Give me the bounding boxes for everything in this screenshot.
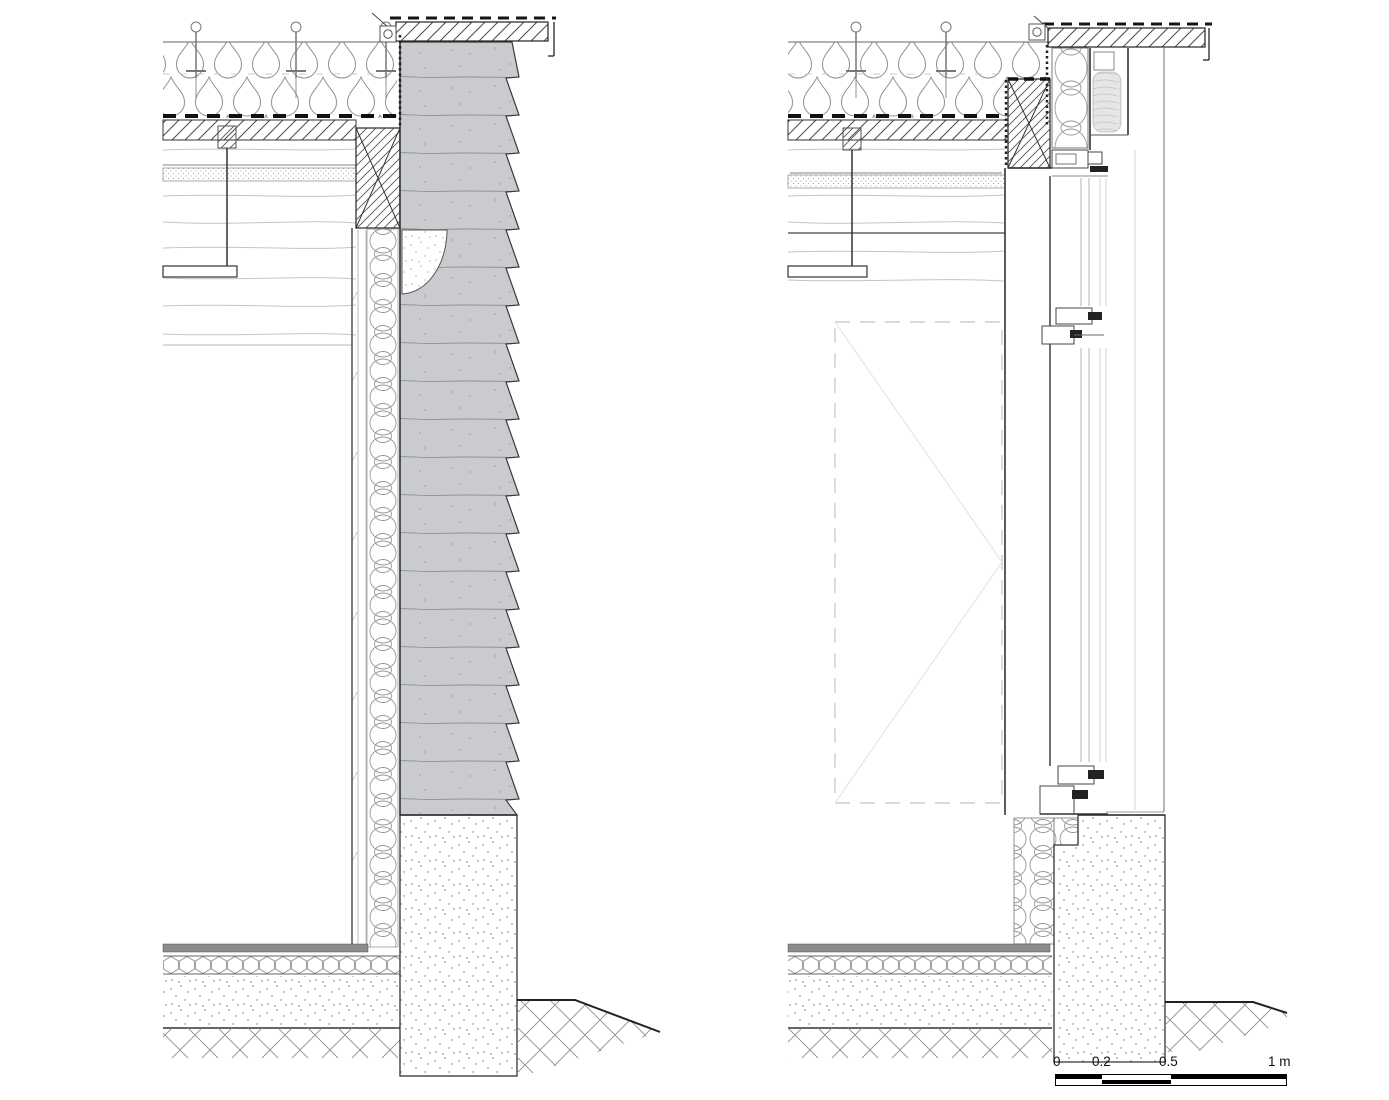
roller-blind-fabric: [1093, 72, 1121, 132]
membrane-upstand: [372, 13, 388, 27]
coping-anchor: [380, 26, 396, 42]
floor-buildup: [788, 944, 1052, 1058]
detail-left: [163, 13, 660, 1078]
roof-deck: [788, 120, 1008, 140]
service-board: [163, 168, 356, 181]
suspended-ceiling-board: [163, 266, 237, 277]
scale-bar: 0 0.2 0.5 1 m: [1048, 1054, 1310, 1094]
scale-label-05: 0.5: [1159, 1054, 1178, 1069]
timber-blocking: [356, 128, 400, 228]
floor-insulation-board: [788, 956, 1052, 974]
hardcore-ground: [163, 1028, 400, 1058]
door-leaf-projection: [835, 322, 1002, 803]
service-board: [788, 175, 1005, 188]
floor-slab: [788, 976, 1052, 1028]
scale-label-1m: 1 m: [1268, 1054, 1291, 1069]
drawing-canvas: 0 0.2 0.5 1 m: [0, 0, 1389, 1100]
ceiling-hanger: [843, 128, 861, 266]
concrete-plinth: [400, 815, 517, 1076]
blind-bracket: [1094, 52, 1114, 70]
hardcore-ground: [788, 1028, 1052, 1058]
floor-slab: [163, 976, 400, 1028]
head-insulation-box: [1052, 48, 1088, 148]
roof-insulation: [163, 42, 397, 118]
construction-details-svg: [0, 0, 1389, 1100]
ceiling-hanger: [218, 126, 236, 266]
scale-label-0: 0: [1053, 1054, 1061, 1069]
suspended-ceiling-board: [788, 266, 867, 277]
scale-label-02: 0.2: [1092, 1054, 1111, 1069]
transom-profile: [1042, 308, 1104, 344]
roof-insulation-upstand: [1008, 42, 1050, 79]
coping-anchor: [1029, 24, 1045, 40]
floor-finish: [788, 944, 1050, 952]
exterior-ground: [1165, 1002, 1287, 1052]
interior-lining: [352, 228, 366, 947]
sill-frame: [1040, 766, 1108, 814]
timber-blocking: [1008, 79, 1050, 168]
timber-beams: [788, 149, 1005, 281]
concrete-plinth: [1054, 815, 1165, 1062]
detail-right: [788, 16, 1287, 1062]
floor-insulation-board: [163, 956, 400, 974]
roof-insulation: [788, 42, 1008, 118]
roller-blind-housing: [1090, 48, 1128, 150]
floor-finish: [163, 944, 368, 952]
interior-insulation: [367, 229, 398, 947]
scale-bar-graphic: [1055, 1074, 1287, 1086]
floor-buildup: [163, 944, 400, 1058]
roof-deck: [163, 120, 356, 140]
exterior-ground: [517, 1000, 660, 1078]
stone-masonry-wall: [400, 42, 519, 815]
